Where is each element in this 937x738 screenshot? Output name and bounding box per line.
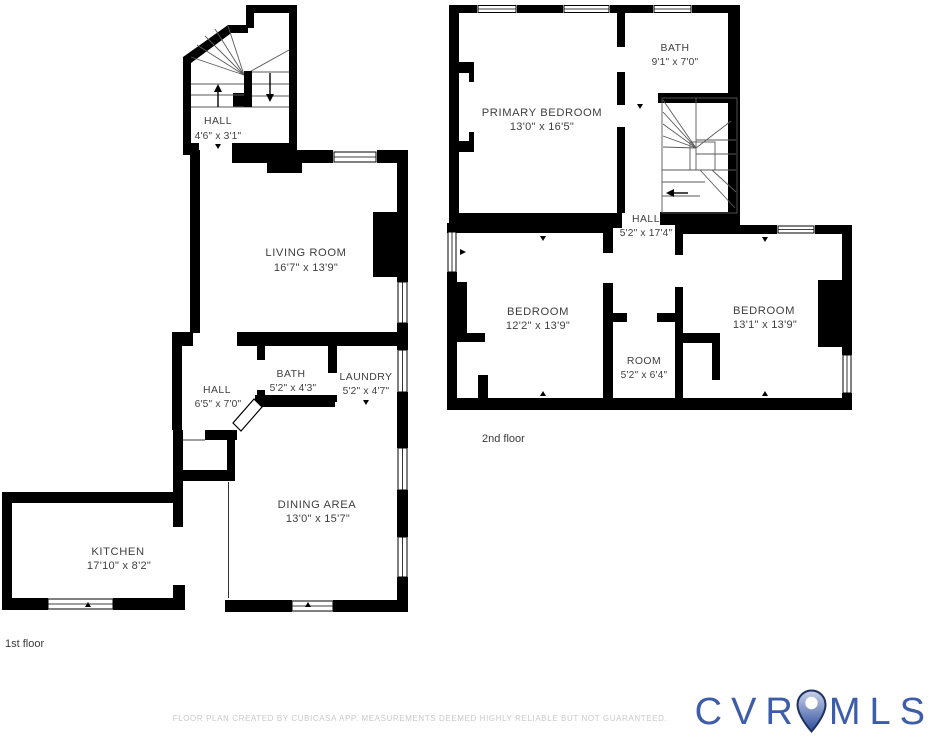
window (843, 355, 851, 393)
room-label-primary: PRIMARY BEDROOM (482, 107, 602, 119)
window (334, 152, 376, 162)
room-dims-hall-mid: 6'5" x 7'0" (195, 399, 242, 410)
room-dims-living: 16'7" x 13'9" (274, 262, 338, 274)
room-dims-kitchen: 17'10" x 8'2" (87, 560, 151, 572)
room-label-hall-mid: HALL (203, 385, 231, 396)
first-floor-plan: HALL 4'6" x 3'1" LIVING ROOM 16'7" x 13'… (2, 5, 408, 612)
chimney-block (373, 212, 408, 277)
room-label-bath: BATH (277, 369, 306, 380)
location-pin-icon (796, 689, 827, 733)
room-label-laundry: LAUNDRY (340, 372, 393, 383)
first-floor-stairs (191, 26, 289, 107)
room-dims-laundry: 5'2" x 4'7" (343, 386, 390, 397)
second-floor-windows (448, 6, 851, 394)
logo-text-mls: MLS (829, 690, 934, 734)
window (398, 537, 407, 577)
room-dims-primary: 13'0" x 16'5" (510, 121, 574, 133)
second-floor-stairs (662, 98, 737, 213)
chimney-block (457, 282, 467, 338)
room-label-dining: DINING AREA (278, 499, 357, 511)
room-dims-dining: 13'0" x 15'7" (286, 513, 350, 525)
footer-disclaimer: FLOOR PLAN CREATED BY CUBICASA APP. MEAS… (120, 714, 720, 723)
room-dims-bedroom-left: 12'2" x 13'9" (506, 320, 570, 332)
window (448, 232, 456, 272)
room-dims-bath2: 9'1" x 7'0" (652, 57, 699, 68)
room-dims-bedroom-right: 13'1" x 13'9" (733, 319, 797, 331)
window (398, 282, 407, 323)
stairs-up-arrow (214, 84, 222, 107)
room-label-room: ROOM (627, 356, 661, 367)
first-floor-caption: 1st floor (5, 638, 44, 650)
room-label-hall2: HALL (632, 214, 660, 225)
first-floor-door-ticks (85, 144, 369, 607)
window (478, 6, 516, 13)
room-dims-hall-upper: 4'6" x 3'1" (195, 131, 242, 142)
room-label-living: LIVING ROOM (265, 247, 346, 259)
window (654, 6, 691, 13)
floor-plan-drawing: HALL 4'6" x 3'1" LIVING ROOM 16'7" x 13'… (0, 0, 937, 738)
second-floor-walls (447, 5, 852, 410)
window (48, 599, 113, 609)
second-floor-plan: BATH 9'1" x 7'0" PRIMARY BEDROOM 13'0" x… (447, 5, 852, 410)
window (398, 350, 407, 392)
room-label-bedroom-right: BEDROOM (733, 305, 795, 317)
room-dims-bath: 5'2" x 4'3" (270, 383, 317, 394)
second-floor-room-labels: BATH 9'1" x 7'0" PRIMARY BEDROOM 13'0" x… (482, 43, 797, 381)
room-label-bedroom-left: BEDROOM (507, 306, 569, 318)
room-dims-hall2: 5'2" x 17'4" (620, 228, 673, 239)
room-label-kitchen: KITCHEN (91, 546, 144, 558)
window (398, 448, 407, 490)
room-dims-room: 5'2" x 6'4" (621, 370, 668, 381)
window (778, 226, 814, 233)
cvrmls-logo: CVR MLS (695, 689, 934, 734)
logo-text-cvr: CVR (695, 690, 802, 734)
window (292, 601, 333, 611)
room-label-bath2: BATH (661, 43, 690, 54)
stairs-down-arrow (266, 73, 274, 102)
second-floor-door-ticks (460, 104, 768, 396)
window (564, 6, 609, 13)
second-floor-caption: 2nd floor (482, 433, 525, 445)
floor-plan-page: HALL 4'6" x 3'1" LIVING ROOM 16'7" x 13'… (0, 0, 937, 738)
room-label-hall-upper: HALL (204, 116, 232, 127)
